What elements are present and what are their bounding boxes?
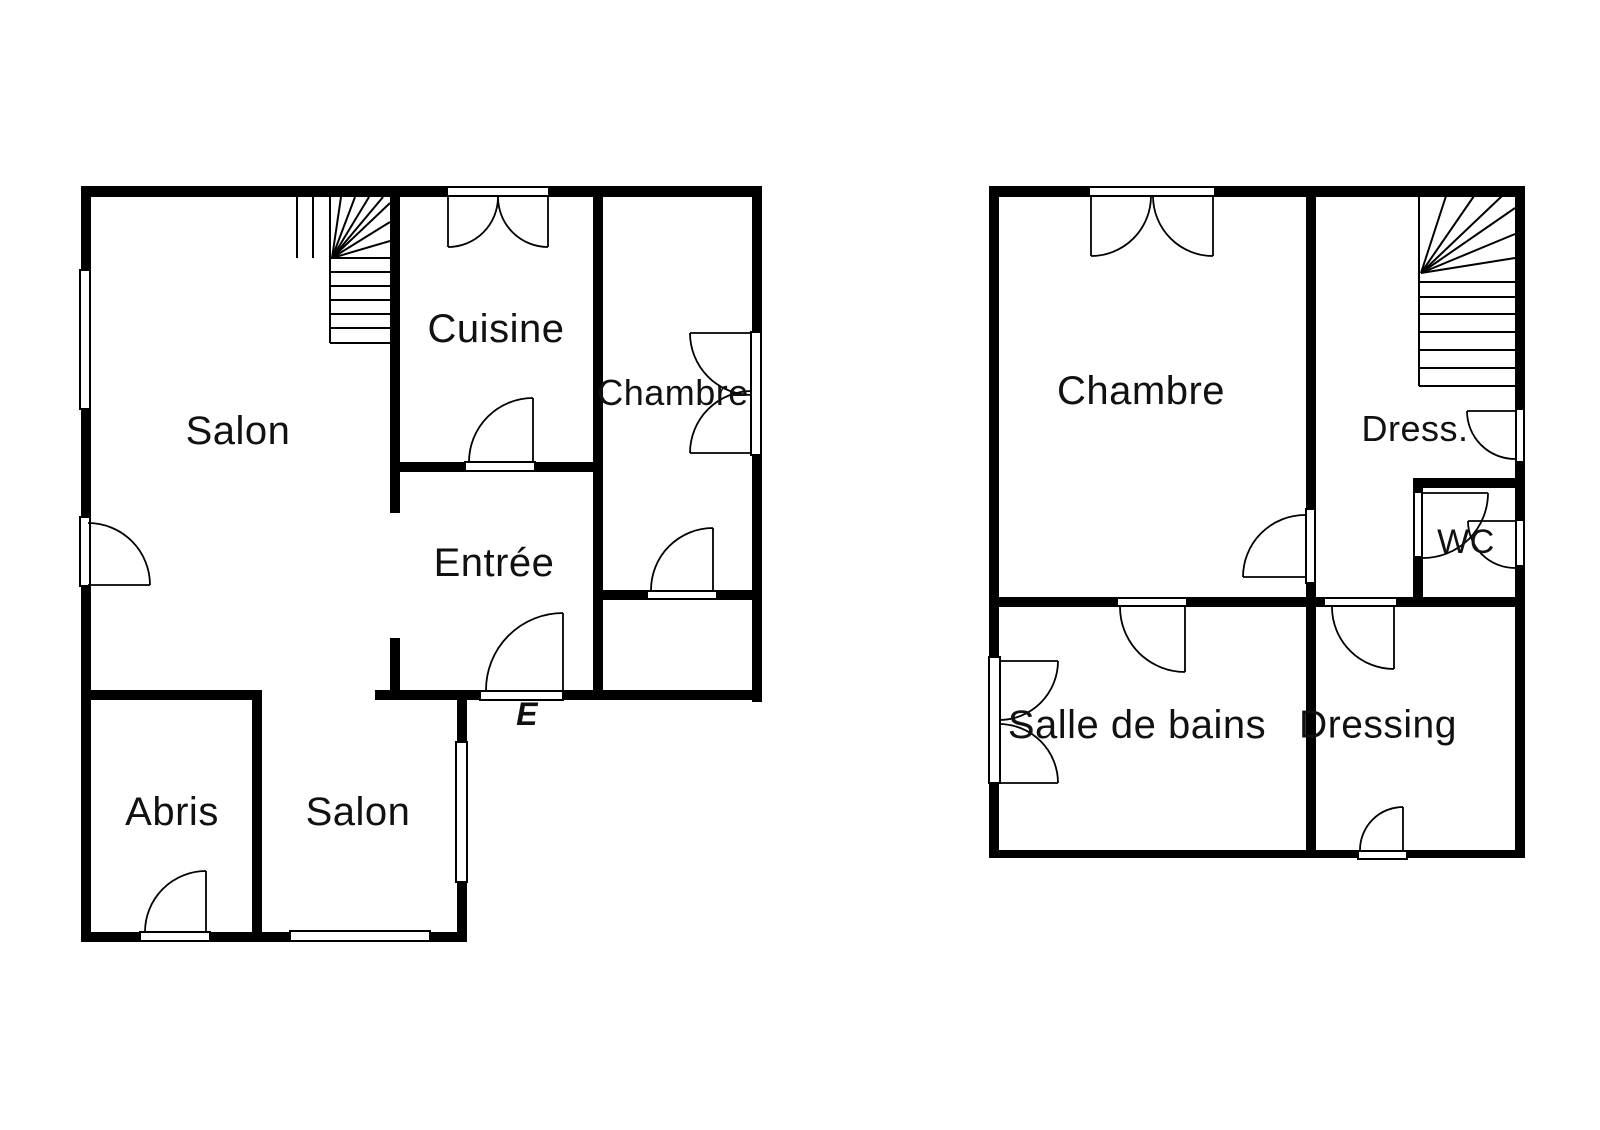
wall (752, 197, 762, 332)
window-or-door-frame (456, 742, 467, 882)
wall (989, 597, 1117, 607)
window-or-door-frame (465, 462, 535, 471)
room-label-salon: Salon (186, 411, 291, 451)
window-or-door-frame (1516, 409, 1524, 462)
entrance-door-label: E (516, 698, 538, 730)
door-swing (651, 528, 713, 590)
wall (252, 700, 262, 932)
window-or-door-frame (1358, 851, 1407, 859)
wall (81, 409, 91, 517)
wall (1515, 462, 1525, 520)
door-swing (1153, 196, 1213, 256)
window-or-door-frame (1089, 187, 1215, 196)
wall (593, 186, 603, 700)
floor-plan-canvas (0, 0, 1600, 1130)
window-or-door-frame (447, 187, 549, 196)
window-or-door-frame (1516, 520, 1524, 566)
wall (375, 690, 480, 700)
door-swing (498, 197, 548, 247)
door-swing (1120, 607, 1185, 672)
wall (81, 186, 762, 197)
window-or-door-frame (80, 517, 90, 586)
window-or-door-frame (140, 932, 210, 941)
wall (717, 590, 752, 600)
wall (1187, 597, 1324, 607)
door-swing (448, 197, 498, 247)
wall (603, 590, 647, 600)
window-or-door-frame (1414, 492, 1422, 557)
room-label-chambre-etage: Chambre (1057, 371, 1225, 411)
room-label-wc: WC (1437, 525, 1495, 559)
wall (1413, 478, 1525, 488)
wall (1413, 478, 1423, 492)
window-or-door-frame (1117, 598, 1187, 606)
room-label-chambre: Chambre (597, 375, 749, 411)
door-swing (1360, 807, 1403, 850)
wall (400, 462, 465, 472)
wall (752, 455, 762, 702)
wall (535, 462, 593, 472)
room-label-dressing: Dressing (1299, 706, 1457, 745)
window-or-door-frame (647, 591, 717, 599)
door-swing (469, 398, 533, 462)
wall (81, 932, 140, 942)
wall (1306, 583, 1316, 597)
wall (989, 783, 999, 858)
door-swing (88, 523, 150, 585)
door-swing (1091, 196, 1151, 256)
room-label-abris: Abris (125, 792, 219, 832)
room-label-salon-bas: Salon (306, 792, 411, 832)
wall (81, 690, 262, 700)
window-or-door-frame (751, 332, 761, 455)
window-or-door-frame (989, 657, 1000, 783)
wall (390, 638, 400, 690)
stair-line (332, 222, 390, 258)
wall (1413, 557, 1423, 597)
floor-plan-page: Salon Cuisine Chambre Entrée Abris Salon… (0, 0, 1600, 1130)
wall (81, 197, 91, 270)
wall (1515, 566, 1525, 858)
wall (457, 700, 467, 742)
wall (1306, 196, 1316, 509)
window-or-door-frame (290, 931, 430, 941)
wall (1407, 850, 1525, 858)
wall (563, 690, 762, 700)
door-swing (486, 613, 563, 690)
window-or-door-frame (1324, 598, 1397, 606)
wall (430, 932, 467, 942)
door-swing (1467, 411, 1515, 459)
window-or-door-frame (80, 270, 90, 409)
wall (81, 586, 91, 942)
wall (989, 197, 999, 657)
room-label-dress: Dress. (1361, 411, 1468, 447)
wall (210, 932, 290, 942)
window-or-door-frame (1306, 509, 1315, 583)
door-swing (1332, 607, 1394, 669)
wall (989, 186, 1525, 197)
room-label-cuisine: Cuisine (428, 309, 565, 349)
wall (989, 850, 1358, 858)
room-label-salle-de-bains: Salle de bains (1008, 705, 1266, 745)
wall (1397, 597, 1525, 607)
door-swing (145, 871, 206, 932)
wall (1515, 197, 1525, 409)
room-label-entree: Entrée (434, 543, 555, 583)
wall (390, 186, 400, 513)
wall (457, 882, 467, 932)
door-swing (1243, 515, 1305, 577)
